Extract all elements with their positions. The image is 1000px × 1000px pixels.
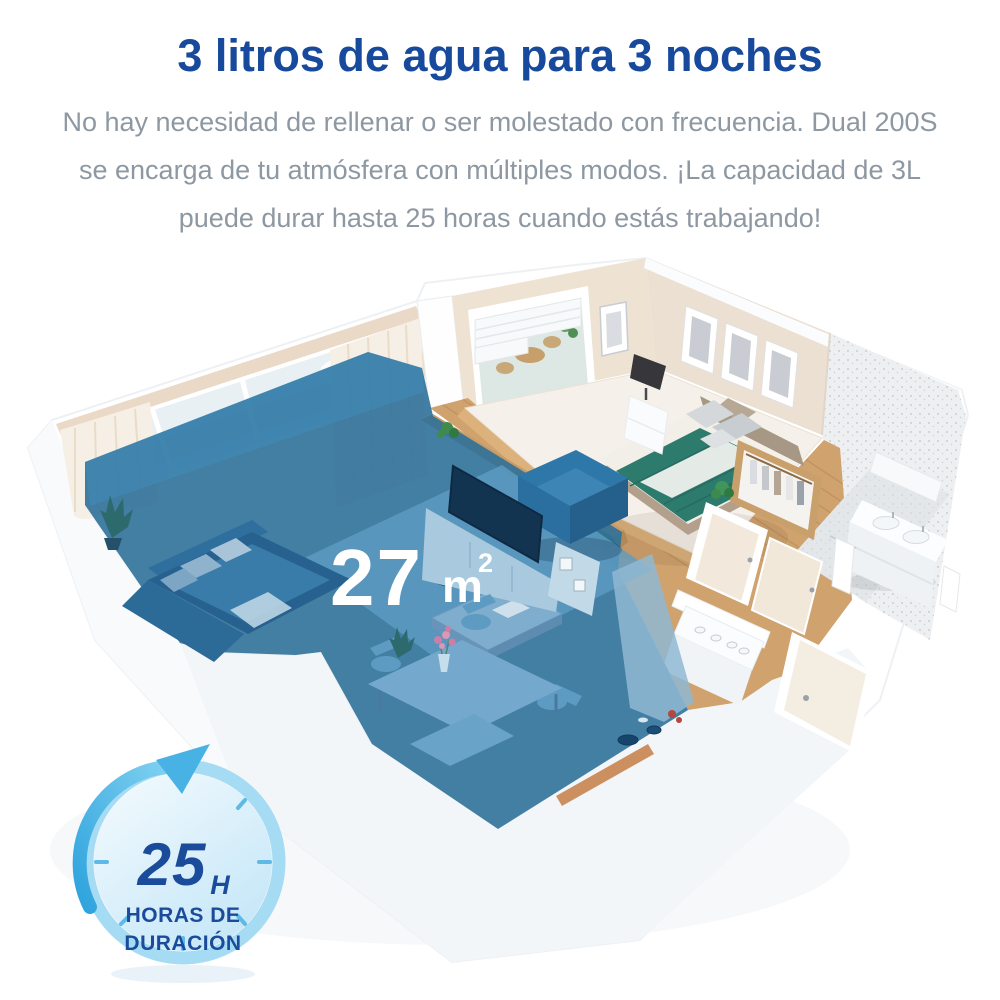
subtitle-line-2: se encarga de tu atmósfera con múltiples…: [0, 146, 1000, 194]
area-value: 27: [330, 533, 423, 622]
badge-caption-line2: DURACIÓN: [124, 931, 241, 955]
page-title: 3 litros de agua para 3 noches: [0, 30, 1000, 82]
page-subtitle: No hay necesidad de rellenar o ser moles…: [0, 98, 1000, 242]
area-unit: m: [442, 560, 483, 612]
subtitle-line-3: puede durar hasta 25 horas cuando estás …: [0, 194, 1000, 242]
badge-hours-value: 25: [137, 831, 207, 898]
badge-hours-unit: H: [210, 870, 230, 900]
subtitle-line-1: No hay necesidad de rellenar o ser moles…: [0, 98, 1000, 146]
area-exponent: 2: [478, 548, 493, 578]
page-header: 3 litros de agua para 3 noches No hay ne…: [0, 0, 1000, 242]
badge-caption-line1: HORAS DE: [126, 904, 241, 927]
duration-badge: 25 H HORAS DE DURACIÓN: [60, 742, 310, 1000]
